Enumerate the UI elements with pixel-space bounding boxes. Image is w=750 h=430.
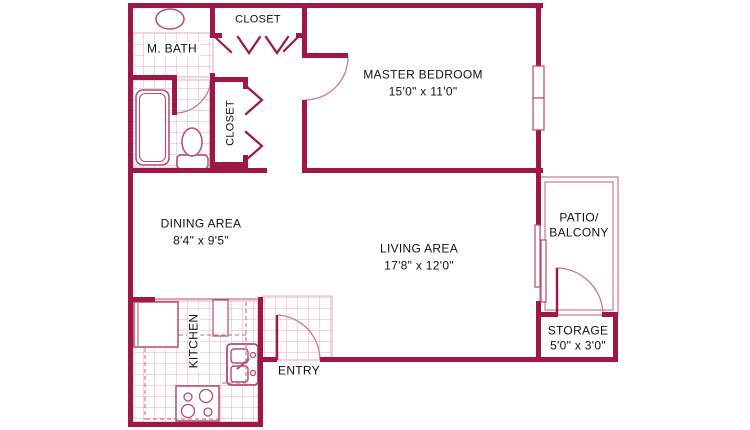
floor-plan-drawing <box>0 0 750 430</box>
floor-plan: CLOSET M. BATH CLOSET MASTER BEDROOM 15'… <box>0 0 750 430</box>
counter <box>213 300 228 336</box>
living-area-label: LIVING AREA <box>380 243 458 256</box>
storage-label: STORAGE <box>548 325 609 338</box>
patio-label-line2: BALCONY <box>549 227 608 240</box>
patio-outline <box>540 177 618 315</box>
bath-sink <box>156 9 184 29</box>
kitchen-label: KITCHEN <box>188 311 201 372</box>
dining-area-label: DINING AREA <box>161 218 242 231</box>
bathtub <box>136 90 169 165</box>
refrigerator <box>134 302 178 347</box>
patio-sliding-door <box>535 225 546 302</box>
closet-top-label: CLOSET <box>235 14 281 27</box>
patio-label-line1: PATIO/ <box>559 212 598 225</box>
entry-label: ENTRY <box>278 365 320 378</box>
master-bedroom-label: MASTER BEDROOM <box>363 69 483 82</box>
living-area-dims: 17'8" x 12'0" <box>384 260 454 273</box>
bedroom-door-panel <box>302 53 348 58</box>
dining-area-dims: 8'4" x 9'5" <box>173 235 229 248</box>
closet-hall-label: CLOSET <box>225 97 238 149</box>
master-bedroom-dims: 15'0" x 11'0" <box>389 86 458 99</box>
storage-dims: 5'0" x 3'0" <box>550 340 606 353</box>
kitchen-sink <box>227 344 258 385</box>
bath-door-panel <box>172 75 177 115</box>
storage-door-arc <box>557 268 603 315</box>
m-bath-label: M. BATH <box>144 43 200 56</box>
stove <box>176 386 219 421</box>
bedroom-window <box>533 66 544 130</box>
bedroom-door-arc <box>305 57 348 100</box>
